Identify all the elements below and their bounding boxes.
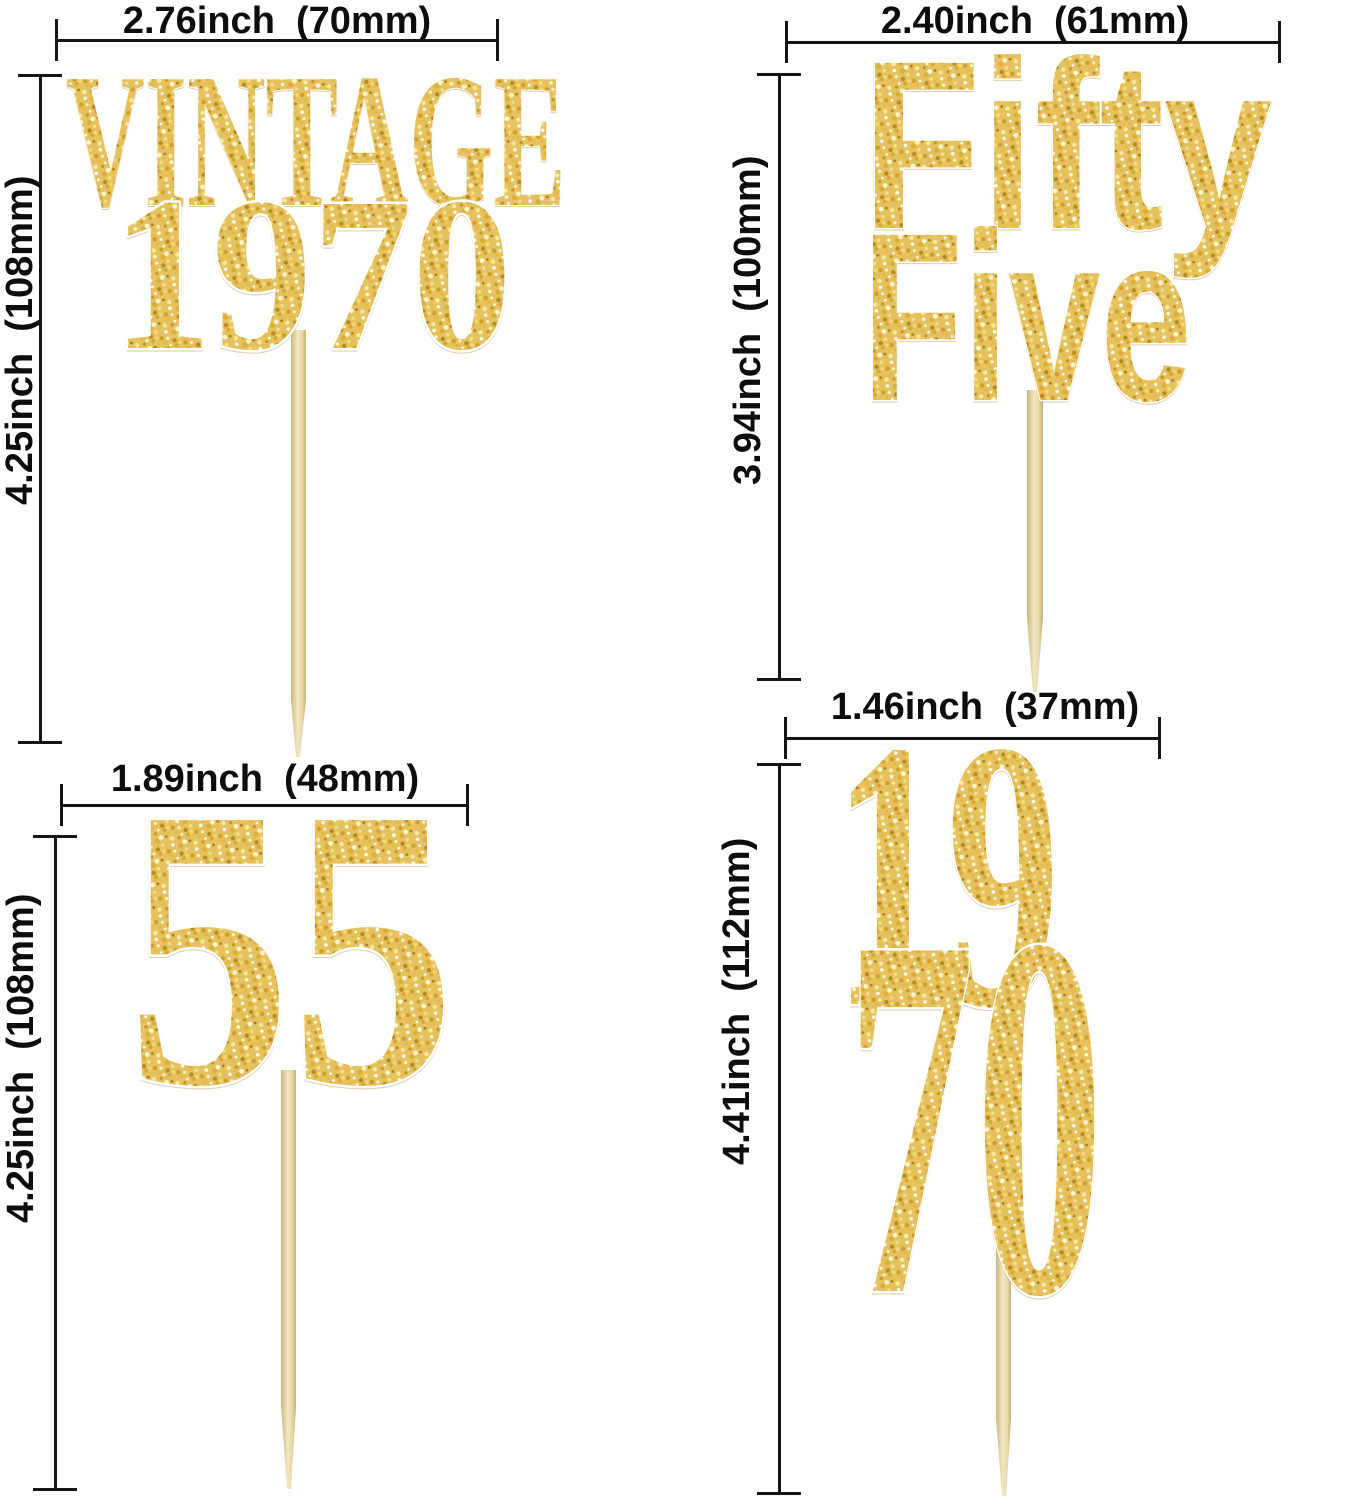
dimension-tick xyxy=(757,678,801,681)
width-label-fifty-five-numeral: 1.89inch (48mm) xyxy=(105,758,425,800)
width-dimension-line-fifty-five-words xyxy=(787,41,1280,44)
height-dimension-line-fifty-five-words xyxy=(778,74,781,680)
dimension-tick xyxy=(18,741,62,744)
dimension-tick xyxy=(33,1488,77,1491)
dimension-tick xyxy=(496,19,499,61)
product-dimension-diagram: VINTAGE 1970 Fifty Five 55 19 70 2.76inc… xyxy=(0,0,1350,1500)
dimension-tick xyxy=(18,74,62,77)
width-dimension-line-fifty-five-numeral xyxy=(62,804,468,807)
height-label-vintage-1970: 4.25inch (108mm) xyxy=(0,195,41,505)
dimension-tick xyxy=(1158,717,1161,759)
width-label-vintage-1970: 2.76inch (70mm) xyxy=(117,0,437,42)
height-label-nineteen-seventy: 4.41inch (112mm) xyxy=(716,855,758,1165)
dimension-tick xyxy=(33,835,77,838)
dimension-tick xyxy=(466,784,469,826)
height-dimension-line-vintage-1970 xyxy=(39,75,42,744)
height-dimension-line-fifty-five-numeral xyxy=(54,836,57,1491)
dimension-tick xyxy=(785,21,788,63)
dimension-tick xyxy=(55,19,58,61)
dimension-tick xyxy=(784,717,787,759)
width-dimension-line-vintage-1970 xyxy=(57,39,498,42)
height-label-fifty-five-numeral: 4.25inch (108mm) xyxy=(0,913,42,1223)
width-dimension-line-nineteen-seventy xyxy=(786,737,1160,740)
topper-artwork: VINTAGE 1970 Fifty Five 55 19 70 xyxy=(0,0,1350,1500)
height-dimension-line-nineteen-seventy xyxy=(778,764,781,1495)
width-label-nineteen-seventy: 1.46inch (37mm) xyxy=(825,686,1145,728)
topper-vintage-year: 1970 xyxy=(112,152,512,396)
height-label-fifty-five-words: 3.94inch (100mm) xyxy=(727,175,769,485)
dimension-tick xyxy=(757,73,801,76)
dimension-tick xyxy=(60,784,63,826)
width-label-fifty-five-words: 2.40inch (61mm) xyxy=(875,0,1195,42)
topper-five-word: Five xyxy=(862,183,1192,451)
topper-70-numerals: 70 xyxy=(846,829,1104,1404)
dimension-tick xyxy=(1278,21,1281,63)
dimension-tick xyxy=(757,763,801,766)
dimension-tick xyxy=(757,1492,801,1495)
